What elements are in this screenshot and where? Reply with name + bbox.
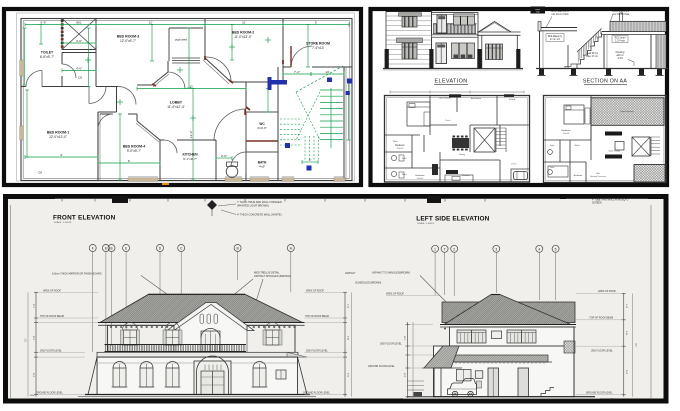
svg-text:5: 5 — [555, 247, 557, 251]
svg-text:2ND FLOOR LEVEL: 2ND FLOOR LEVEL — [380, 343, 402, 346]
svg-text:GROUND FLOOR LEVEL: GROUND FLOOR LEVEL — [586, 393, 613, 395]
svg-text:Open Terrace: Open Terrace — [620, 110, 634, 113]
svg-text:1:2:4 mix: 1:2:4 mix — [615, 40, 626, 43]
svg-text:Bedroom: Bedroom — [562, 129, 571, 132]
svg-text:Wash: Wash — [574, 145, 579, 147]
svg-text:10': 10' — [326, 70, 330, 74]
svg-text:Open Master: Open Master — [439, 97, 452, 100]
svg-text:7'-4"x13': 7'-4"x13' — [312, 46, 324, 50]
svg-text:(PAINTED LIGHT BROWN): (PAINTED LIGHT BROWN) — [237, 204, 269, 208]
svg-text:Toilet: Toilet — [550, 144, 555, 147]
svg-text:3.5x3.6: 3.5x3.6 — [563, 133, 570, 135]
svg-text:11'-0"x13'-0": 11'-0"x13'-0" — [234, 35, 252, 39]
svg-text:12': 12' — [149, 20, 153, 24]
svg-text:Bedroom: Bedroom — [574, 174, 583, 177]
svg-text:Rise 17 cm: Rise 17 cm — [586, 56, 598, 58]
svg-text:mix 10 cm thick: mix 10 cm thick — [551, 13, 569, 16]
svg-text:C8: C8 — [78, 76, 82, 80]
svg-text:MED TRELLIS DETAIL: MED TRELLIS DETAIL — [254, 272, 280, 275]
svg-text:4'x3'-6": 4'x3'-6" — [257, 126, 267, 130]
svg-text:puja area: puja area — [175, 38, 187, 42]
svg-text:ASPHALT TO SHINGLES(BROWN): ASPHALT TO SHINGLES(BROWN) — [372, 272, 410, 275]
svg-text:GROUND FLOOR LEVEL: GROUND FLOOR LEVEL — [36, 393, 64, 395]
svg-text:Toilet: Toilet — [402, 157, 407, 160]
svg-text:Open Living: Open Living — [608, 151, 620, 153]
svg-text:Balcony Terracotta: Balcony Terracotta — [590, 175, 607, 178]
svg-text:7' THICK TRUE AND WALL FINISHE: 7' THICK TRUE AND WALL FINISHED — [237, 200, 282, 204]
svg-text:12'-4": 12'-4" — [189, 130, 193, 138]
svg-text:St.Bed: St.Bed — [509, 98, 516, 101]
svg-text:TOP OF ROOF BEAM: TOP OF ROOF BEAM — [305, 315, 329, 318]
svg-text:Bed Room: Bed Room — [471, 98, 482, 100]
svg-text:4" THICK CONCRETE WALL (WHITE): 4" THICK CONCRETE WALL (WHITE) — [237, 213, 282, 217]
svg-text:Flat: Flat — [596, 172, 600, 175]
svg-text:Toilet: Toilet — [393, 140, 398, 143]
svg-text:1:4:8: 1:4:8 — [617, 57, 623, 60]
svg-text:SCALE 1:100TS: SCALE 1:100TS — [417, 222, 434, 225]
svg-text:9'-0"x9'-7": 9'-0"x9'-7" — [127, 149, 141, 153]
svg-text:Toilet: Toilet — [402, 173, 407, 176]
svg-text:APEX OF ROOF: APEX OF ROOF — [306, 289, 324, 292]
svg-text:Porch: Porch — [511, 164, 516, 166]
svg-text:4'-6": 4'-6" — [76, 66, 82, 70]
svg-text:SECTION ON AA: SECTION ON AA — [583, 79, 627, 85]
svg-text:4' TUBE THRU WALL W/ MOSQTO: 4' TUBE THRU WALL W/ MOSQTO — [592, 199, 629, 202]
svg-text:Toilet: Toilet — [550, 166, 555, 169]
svg-text:F: F — [92, 247, 94, 251]
svg-text:6.5mm THICK MIRROR OR FINISH B: 6.5mm THICK MIRROR OR FINISH BOARD — [52, 273, 102, 276]
svg-text:2ND FLOOR LEVEL: 2ND FLOOR LEVEL — [40, 349, 62, 352]
svg-text:Kitchen: Kitchen — [462, 174, 470, 177]
svg-text:Bedroom: Bedroom — [416, 174, 425, 177]
svg-text:6'-6"x9'-7": 6'-6"x9'-7" — [40, 55, 54, 59]
svg-text:2ND FLOOR LEVEL: 2ND FLOOR LEVEL — [306, 349, 328, 352]
svg-text:APEX OF ROOF: APEX OF ROOF — [43, 289, 61, 292]
svg-text:7'-2": 7'-2" — [294, 70, 300, 74]
svg-text:6'-6": 6'-6" — [41, 20, 47, 24]
svg-text:SCALE 1:100TS: SCALE 1:100TS — [54, 221, 72, 224]
svg-text:ASPHALT: ASPHALT — [345, 272, 356, 275]
svg-text:GROUND FLOOR LEVEL: GROUND FLOOR LEVEL — [303, 393, 331, 395]
svg-text:SCREEN: SCREEN — [592, 202, 602, 204]
svg-text:2: 2 — [453, 247, 455, 251]
svg-text:9'-1"x9'-7": 9'-1"x9'-7" — [183, 157, 197, 161]
svg-text:TOP OF ROOF BEAM: TOP OF ROOF BEAM — [40, 315, 64, 318]
svg-text:TOP OF ROOF BEAM: TOP OF ROOF BEAM — [589, 316, 613, 319]
svg-text:mix 10 cm thick: mix 10 cm thick — [613, 13, 630, 16]
svg-text:4: 4 — [538, 247, 540, 251]
svg-text:1: 1 — [434, 247, 436, 251]
svg-text:11': 11' — [242, 20, 246, 24]
svg-text:4'-6": 4'-6" — [76, 39, 82, 43]
svg-text:LEFT SIDE ELEVATION: LEFT SIDE ELEVATION — [416, 216, 489, 223]
svg-text:Dining: Dining — [459, 154, 466, 156]
svg-text:SCHEDULED (BROWN): SCHEDULED (BROWN) — [355, 282, 381, 285]
svg-text:ELEVATION: ELEVATION — [434, 79, 467, 85]
svg-text:2'-6": 2'-6" — [221, 154, 227, 158]
svg-text:12'-0"x9'-7": 12'-0"x9'-7" — [120, 39, 136, 43]
svg-text:ASPHALT SHINGLES (BROWN): ASPHALT SHINGLES (BROWN) — [254, 275, 291, 278]
svg-text:APEX OF ROOF: APEX OF ROOF — [598, 290, 616, 293]
svg-text:BK1: BK1 — [77, 21, 82, 25]
svg-text:APEX OF ROOF: APEX OF ROOF — [386, 293, 404, 296]
svg-text:MGL: MGL — [30, 395, 36, 397]
svg-text:C8: C8 — [38, 171, 42, 175]
svg-text:3: 3 — [495, 247, 497, 251]
svg-text:3.0x3.6: 3.0x3.6 — [397, 148, 405, 150]
svg-text:4": 4" — [309, 158, 312, 162]
svg-text:tread 26 cm: tread 26 cm — [586, 52, 598, 55]
svg-text:4'x5': 4'x5' — [259, 165, 265, 169]
svg-text:GROUND FLOOR LEVEL: GROUND FLOOR LEVEL — [368, 366, 395, 368]
svg-text:Bedroom: Bedroom — [395, 144, 404, 147]
svg-text:T: T — [444, 247, 446, 251]
svg-text:FRONT ELEVATION: FRONT ELEVATION — [53, 215, 116, 222]
svg-text:in cm 1:6: in cm 1:6 — [550, 38, 560, 41]
svg-text:12'-0"x13'-0": 12'-0"x13'-0" — [49, 135, 67, 139]
svg-text:2ND FLOOR LEVEL: 2ND FLOOR LEVEL — [591, 350, 613, 353]
svg-text:11'-4"x12'-4": 11'-4"x12'-4" — [167, 105, 185, 109]
svg-text:3.6x4.2: 3.6x4.2 — [417, 178, 424, 180]
